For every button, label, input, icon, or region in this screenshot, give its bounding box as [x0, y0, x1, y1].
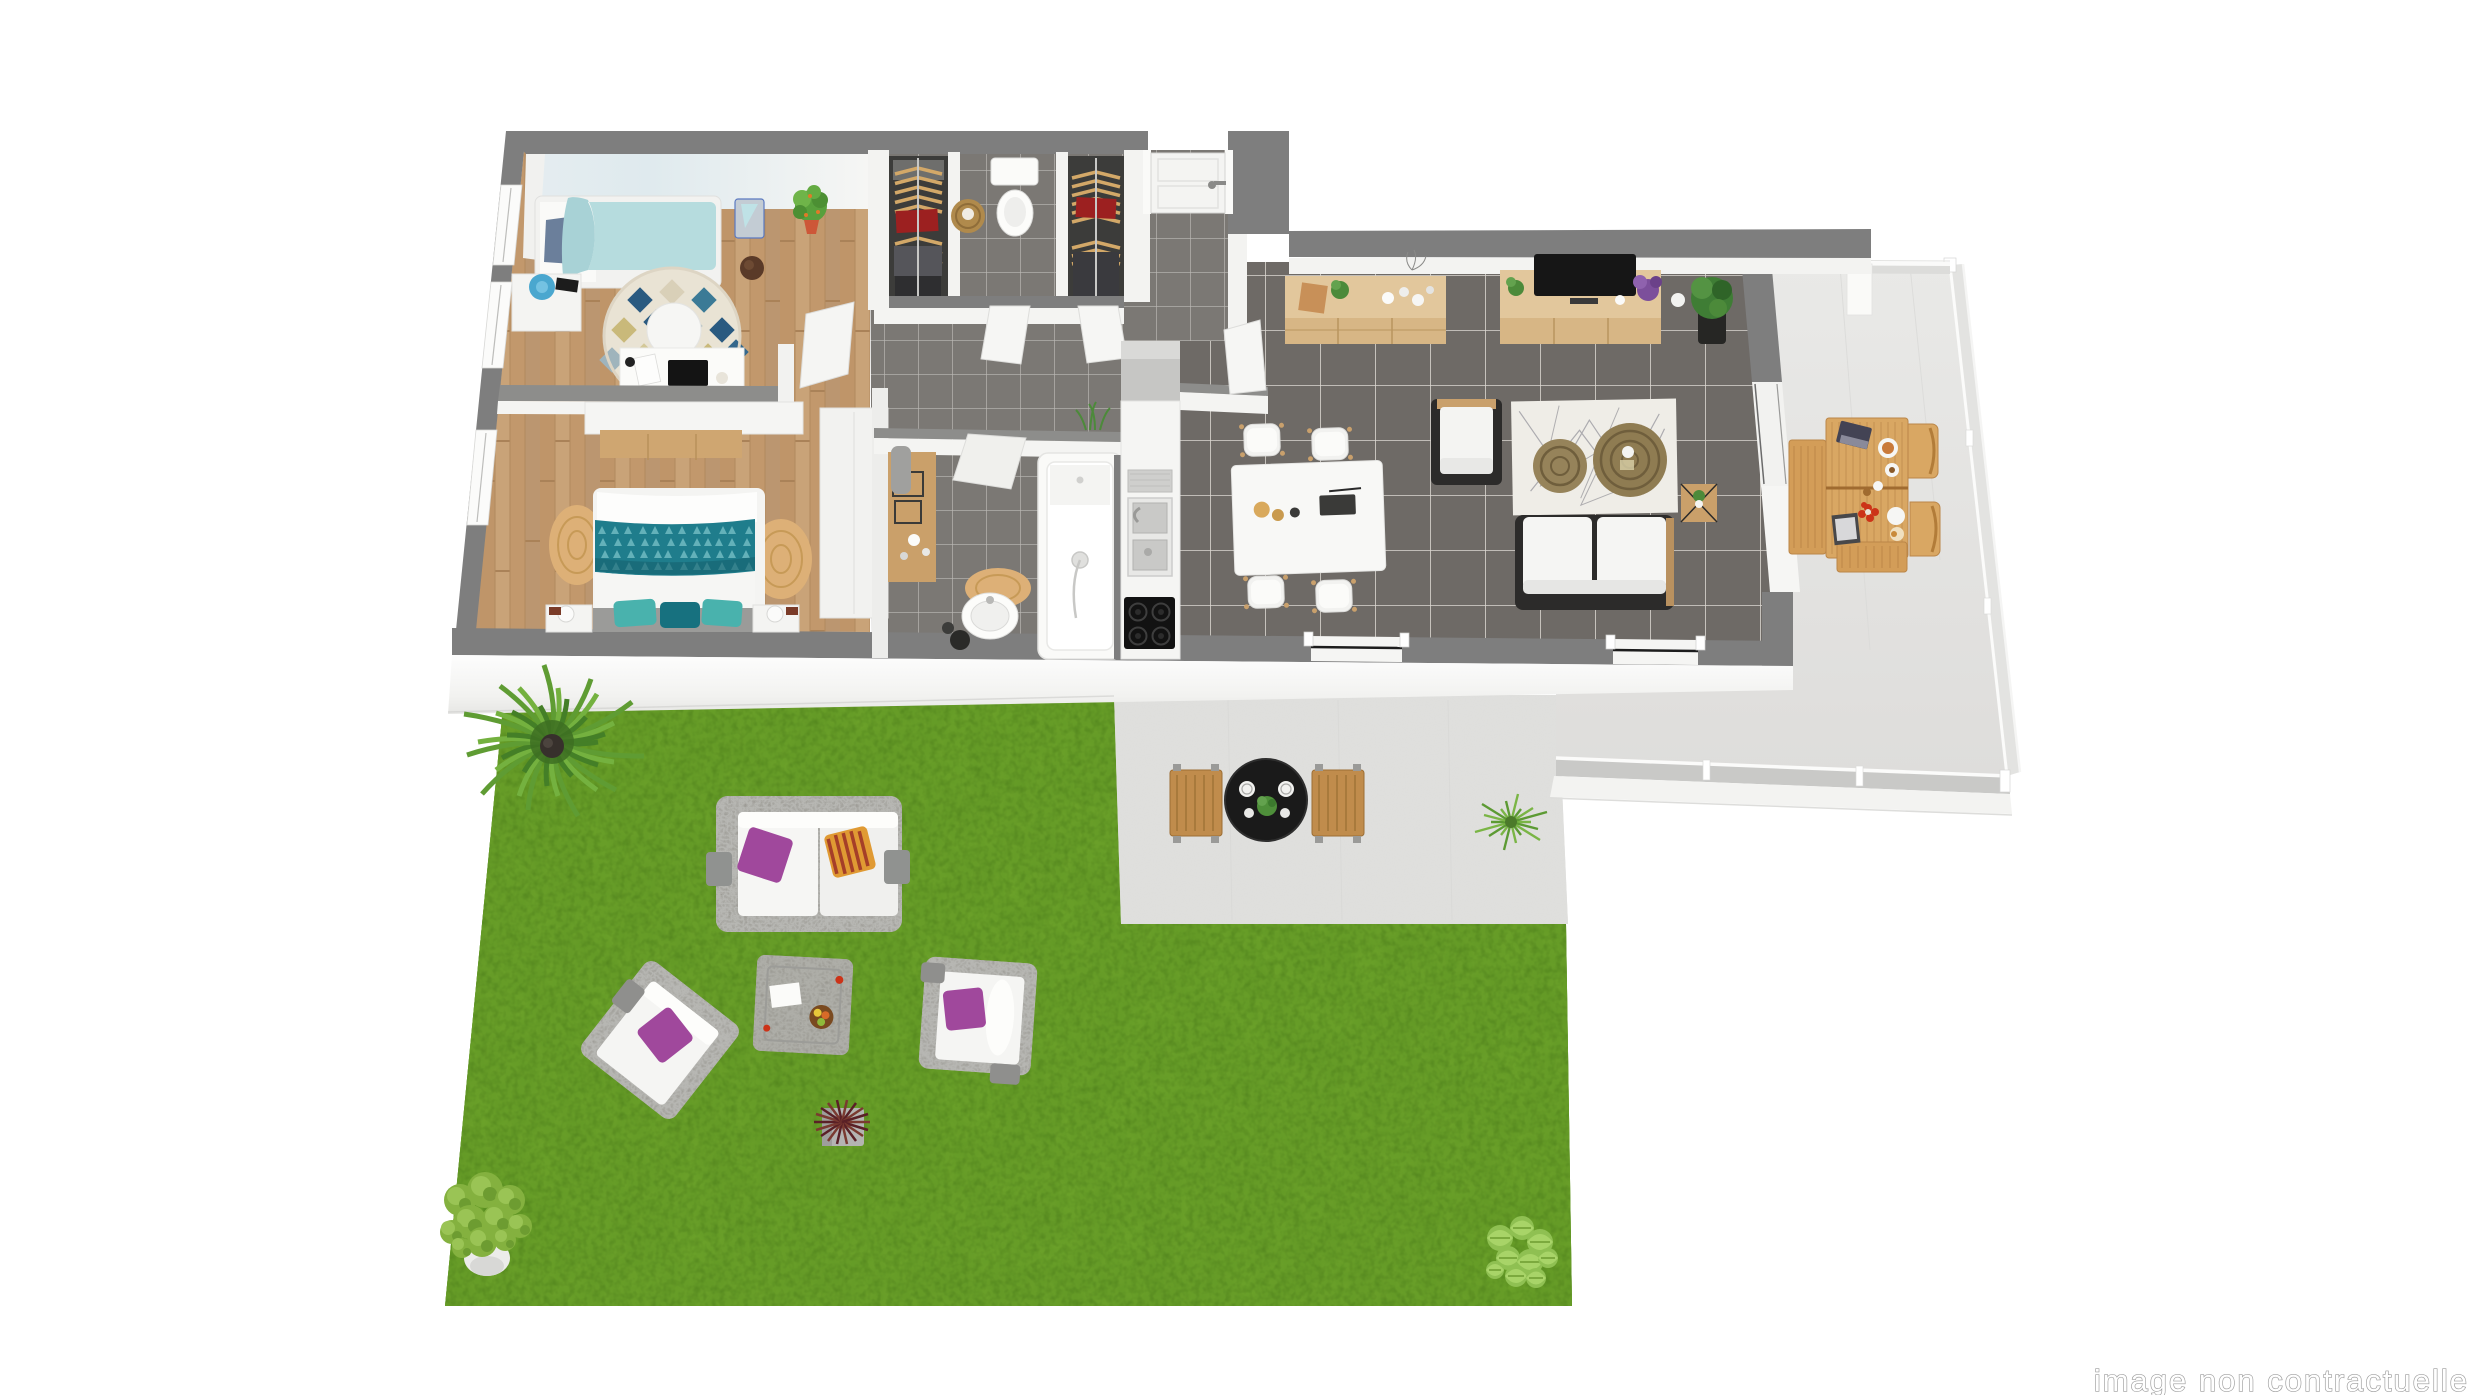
svg-text:image non contractuelle: image non contractuelle [2094, 1363, 2469, 1395]
